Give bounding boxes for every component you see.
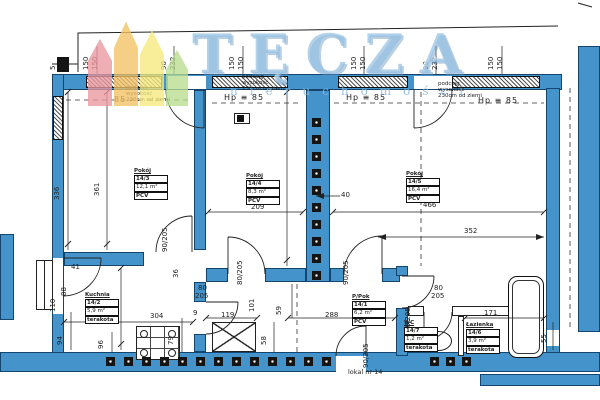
room-floor: terakota <box>85 316 119 325</box>
dimension-label: 304 <box>150 311 163 321</box>
room-table: WC14/71,2 m²terakota <box>404 320 438 352</box>
dimension-label: 352 <box>464 226 477 236</box>
dimension-label: 361 <box>92 183 102 196</box>
dimension-label: 79 <box>166 336 176 345</box>
room-area: 12,1 m² <box>134 183 168 192</box>
room-table: Łazienka14/63,9 m²terakota <box>466 322 500 354</box>
beam-note: podciągwysokość230cm od ziemi <box>242 74 286 92</box>
beam-note-line: 230cm od ziemi <box>438 93 482 99</box>
room-floor: PCV <box>406 195 440 204</box>
dimension-label: 150 <box>495 57 505 70</box>
room-area: 1,2 m² <box>404 335 438 344</box>
room-table: Kuchnia14/25,9 m²terakota <box>85 292 119 324</box>
room-number: 14/6 <box>466 329 500 338</box>
dimension-label: 88 <box>59 287 69 296</box>
dimension-label: 36 <box>171 269 181 278</box>
unit-label: lokal nr 14 <box>348 368 382 376</box>
beam-height-label: Hp ≡ 85 <box>224 93 264 102</box>
dimension-label: 94 <box>55 336 65 345</box>
beam-height-label: 85 <box>114 95 126 104</box>
room-number: 14/7 <box>404 327 438 336</box>
room-area: 16,4 m² <box>406 186 440 195</box>
beam-note: podciągwysokość230cm od ziemi <box>438 81 482 99</box>
room-table: P/Pok14/16,2 m²PCV <box>352 294 386 326</box>
dimension-label: 205 <box>431 291 444 301</box>
dimension-label: 96 <box>96 340 106 349</box>
dimension-label: 288 <box>325 310 338 320</box>
dimension-label: 90/205 <box>160 227 170 252</box>
room-number: 14/2 <box>85 299 119 308</box>
dimension-label: 171 <box>484 308 497 318</box>
dimension-label: 119 <box>221 310 234 320</box>
room-floor: PCV <box>134 192 168 201</box>
room-area: 8,3 m² <box>246 188 280 197</box>
room-floor: PCV <box>246 197 280 206</box>
dimension-label: 5 <box>48 66 58 70</box>
dimension-label: 90/205 <box>341 260 351 285</box>
room-table: Pokój14/516,4 m²PCV <box>406 171 440 203</box>
beam-height-label: Hp ≡ 85 <box>478 96 518 105</box>
beam-note-line: 230cm od ziemi <box>126 97 170 103</box>
room-floor: PCV <box>352 318 386 327</box>
room-area: 5,9 m² <box>85 307 119 316</box>
dimension-label: 336 <box>52 187 62 200</box>
room-floor: terakota <box>466 346 500 355</box>
dimension-label: 41 <box>71 262 80 272</box>
room-number: 14/4 <box>246 180 280 189</box>
dimension-label: 9 <box>193 308 197 318</box>
dimension-label: 150 <box>236 57 246 70</box>
dimension-label: 58 <box>259 336 269 345</box>
dimension-label: 40 <box>341 190 350 200</box>
room-table: Pokój14/312,1 m²PCV <box>134 168 168 200</box>
room-area: 3,9 m² <box>466 337 500 346</box>
room-area: 6,2 m² <box>352 309 386 318</box>
dimension-label: 55 <box>539 334 549 343</box>
dimension-label: 101 <box>247 299 257 312</box>
dimension-label: 80/205 <box>235 260 245 285</box>
beam-note-line: 230cm od ziemi <box>242 86 286 92</box>
dimension-label: 150 <box>90 57 100 70</box>
dimension-label: 232 <box>168 57 178 70</box>
dimension-label: 90/205 <box>361 343 371 368</box>
floor-plan-canvas: TĘCZA nieruchomości 15015090232150150150… <box>0 0 600 400</box>
room-number: 14/1 <box>352 301 386 310</box>
dimension-label: 232 <box>430 57 440 70</box>
room-floor: terakota <box>404 344 438 353</box>
beam-height-label: Hp ≡ 85 <box>346 93 386 102</box>
dimension-label: 110 <box>48 299 58 312</box>
dimension-label: 59 <box>274 306 284 315</box>
dimension-label: 205 <box>195 291 208 301</box>
room-number: 14/5 <box>406 178 440 187</box>
dimension-label: 150 <box>358 57 368 70</box>
room-number: 14/3 <box>134 175 168 184</box>
room-table: Pokój14/48,3 m²PCV <box>246 173 280 205</box>
beam-note: podciągwysokość230cm od ziemi <box>126 85 170 103</box>
